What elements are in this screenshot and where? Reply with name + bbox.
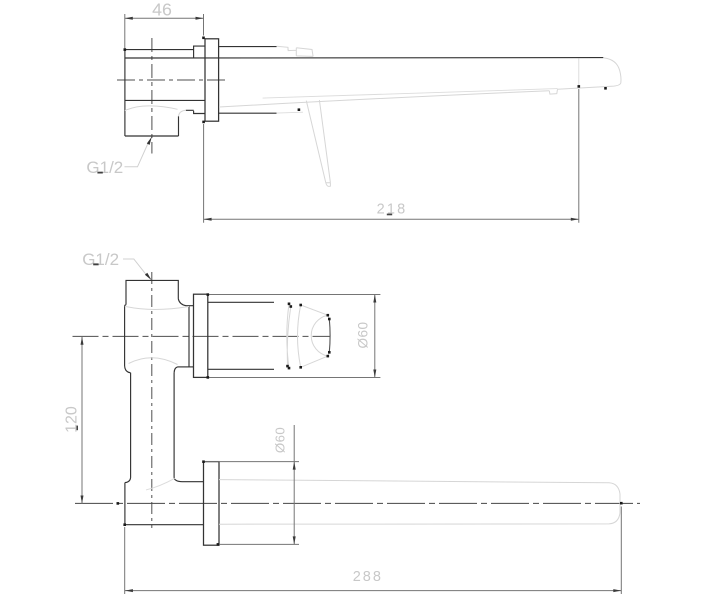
svg-text:218: 218 [377, 202, 408, 218]
svg-text:G1/2: G1/2 [86, 158, 123, 177]
svg-text:46: 46 [152, 0, 172, 20]
svg-text:120: 120 [64, 406, 81, 433]
svg-text:Ø60: Ø60 [356, 322, 371, 349]
svg-text:288: 288 [353, 569, 383, 585]
svg-text:Ø60: Ø60 [273, 427, 288, 453]
svg-text:G1/2: G1/2 [82, 250, 119, 269]
